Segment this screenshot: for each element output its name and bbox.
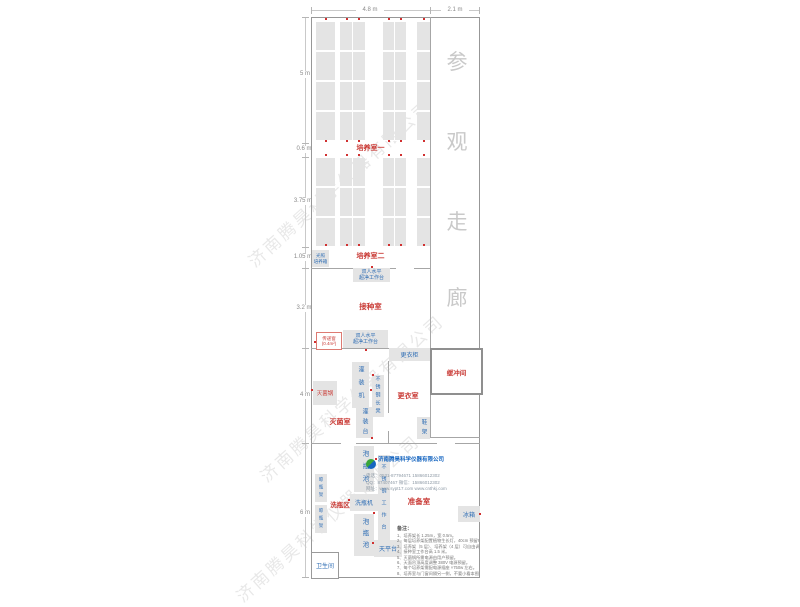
drying-rack-2: 晾瓶架 xyxy=(315,505,327,533)
outlet-dot xyxy=(358,140,360,142)
room-label-prep: 准备室 xyxy=(397,496,441,507)
clean-bench-label: 超净工作台 xyxy=(353,339,378,345)
room-label-buffer: 缓冲间 xyxy=(447,367,467,377)
light-incubator-label: 培养箱 xyxy=(314,259,328,265)
dimension-tick xyxy=(302,577,309,578)
culture-rack xyxy=(353,22,365,141)
autoclave: 灭菌锅 xyxy=(313,381,337,405)
dimension-tick xyxy=(302,443,309,444)
culture-rack xyxy=(417,158,430,246)
autoclave-label: 灭菌锅 xyxy=(317,389,334,397)
corridor-wall xyxy=(430,17,431,348)
steel-bench: 不锈钢长凳 xyxy=(372,375,384,417)
room-label-changing: 更衣室 xyxy=(390,391,426,401)
company-logo-icon xyxy=(366,459,376,469)
outlet-dot xyxy=(423,140,425,142)
outlet-dot xyxy=(370,389,372,391)
dimension-tick xyxy=(302,348,309,349)
prep-room-wall xyxy=(430,437,480,438)
shoe-rack: 鞋架 xyxy=(417,417,430,439)
outlet-dot xyxy=(400,18,402,20)
wall-sterilize-changing xyxy=(388,361,389,413)
notes-title: 备注： xyxy=(397,526,479,533)
filling-machine: 灌装机 xyxy=(352,362,369,408)
culture-rack xyxy=(340,158,352,246)
outlet-dot xyxy=(423,244,425,246)
dimension-tick xyxy=(430,7,431,14)
culture-rack xyxy=(395,158,406,246)
outlet-dot xyxy=(400,244,402,246)
wall-culture2-inoculation xyxy=(414,268,430,269)
light-incubator: 光照 培养箱 xyxy=(312,250,329,267)
outlet-dot xyxy=(365,349,367,351)
room-label-culture1: 培养室一 xyxy=(311,143,430,153)
outlet-dot xyxy=(388,18,390,20)
outlet-dot xyxy=(400,154,402,156)
room-label-toilet: 卫生间 xyxy=(316,561,334,570)
corridor-char: 参 xyxy=(442,46,472,76)
dimension-tick xyxy=(311,7,312,14)
dimension-tick xyxy=(302,268,309,269)
floor-plan-canvas: 济南腾昊科学仪器有限公司 济南腾昊科学仪器有限公司 济南腾昊科学仪器有限公司 4… xyxy=(0,0,800,600)
corridor-char: 廊 xyxy=(442,282,472,312)
corridor-wall xyxy=(430,392,431,437)
corridor-char: 观 xyxy=(442,126,472,156)
outlet-dot xyxy=(358,154,360,156)
wall-sterilize-washing xyxy=(455,443,480,444)
toilet-room: 卫生间 xyxy=(311,552,339,579)
dimension-tick xyxy=(302,143,309,144)
outlet-dot xyxy=(479,513,481,515)
outlet-dot xyxy=(346,154,348,156)
culture-rack xyxy=(353,158,365,246)
dimension-label-width-corridor: 2.1 m xyxy=(441,7,469,14)
outlet-dot xyxy=(423,18,425,20)
outlet-dot xyxy=(346,140,348,142)
bottle-washer: 洗瓶机 xyxy=(350,494,378,511)
outlet-dot xyxy=(372,374,374,376)
outlet-dot xyxy=(346,244,348,246)
left-dimension-line xyxy=(305,17,306,578)
fridge: 冰箱 xyxy=(458,506,480,522)
outlet-dot xyxy=(388,154,390,156)
culture-rack xyxy=(383,22,394,141)
company-contact-block: 济南腾昊科学仪器有限公司 电话：0531-87794671 1586601230… xyxy=(366,455,484,493)
outlet-dot xyxy=(325,140,327,142)
culture-rack xyxy=(340,22,352,141)
outlet-dot xyxy=(325,244,327,246)
outlet-dot xyxy=(372,542,374,544)
dimension-tick xyxy=(302,157,309,158)
outlet-dot xyxy=(371,437,373,439)
culture-rack xyxy=(316,158,335,246)
wall-sterilize-washing xyxy=(356,443,437,444)
dimension-tick xyxy=(302,247,309,248)
outlet-dot xyxy=(400,140,402,142)
wardrobe: 更衣柜 xyxy=(389,348,430,361)
outlet-dot xyxy=(388,244,390,246)
outlet-dot xyxy=(348,499,350,501)
pass-window-label: (0.4m²) xyxy=(322,341,337,347)
outlet-dot xyxy=(371,266,373,268)
outlet-dot xyxy=(325,154,327,156)
note-item: 8、培养室与门窗间隔另一侧，不要小看本图纸。 xyxy=(397,571,479,576)
clean-bench-label: 超净工作台 xyxy=(359,275,384,281)
dimension-label-width-main: 4.8 m xyxy=(356,7,384,14)
pass-window: 传递窗 (0.4m²) xyxy=(316,332,342,350)
outlet-dot xyxy=(311,389,313,391)
outlet-dot xyxy=(375,458,377,460)
outlet-dot xyxy=(346,18,348,20)
outlet-dot xyxy=(325,18,327,20)
clean-bench-2: 双人水平 超净工作台 xyxy=(343,330,388,348)
filling-table: 灌装台 xyxy=(356,407,373,438)
drying-rack-1: 晾瓶架 xyxy=(315,474,327,502)
outlet-dot xyxy=(358,18,360,20)
culture-rack xyxy=(417,22,430,141)
dimension-tick xyxy=(479,7,480,14)
clean-bench-1: 双人水平 超净工作台 xyxy=(353,268,390,282)
outlet-dot xyxy=(373,512,375,514)
dimension-tick xyxy=(302,17,309,18)
culture-rack xyxy=(395,22,406,141)
company-website: 网址：www.sypt17.com www.cnthkj.com xyxy=(366,486,484,493)
culture-rack xyxy=(316,22,335,141)
outlet-dot xyxy=(388,140,390,142)
outlet-dot xyxy=(314,341,316,343)
buffer-room: 缓冲间 xyxy=(430,348,483,395)
corridor-char: 走 xyxy=(442,206,472,236)
soak-pool-2: 泡瓶池 xyxy=(354,514,374,556)
wall-sterilize-washing xyxy=(311,443,341,444)
notes-block: 备注： 1、培养架长 1.25m，宽 0.5m。 2、每层培养架配置植物生长灯，… xyxy=(397,526,479,576)
outlet-dot xyxy=(358,244,360,246)
company-name: 济南腾昊科学仪器有限公司 xyxy=(378,457,444,463)
outlet-dot xyxy=(423,154,425,156)
room-label-inoculation: 接种室 xyxy=(311,301,430,312)
culture-rack xyxy=(383,158,394,246)
wall-sterilize-changing xyxy=(388,431,389,443)
